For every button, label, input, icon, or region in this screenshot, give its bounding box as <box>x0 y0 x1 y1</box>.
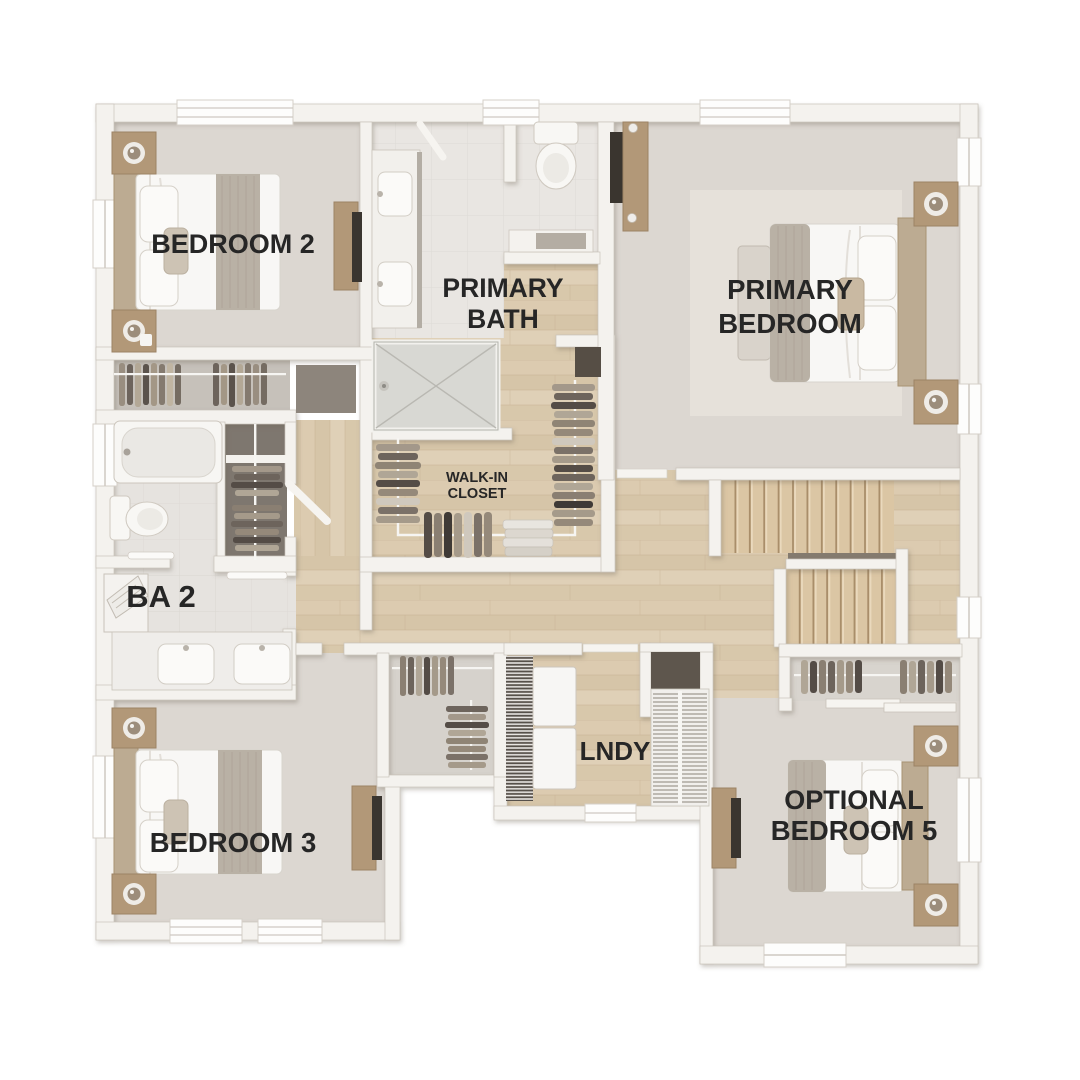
svg-text:WALK-IN: WALK-IN <box>446 470 508 486</box>
svg-text:BA 2: BA 2 <box>126 579 195 614</box>
svg-text:OPTIONAL: OPTIONAL <box>784 785 924 815</box>
svg-text:BATH: BATH <box>467 304 539 334</box>
svg-text:PRIMARY: PRIMARY <box>727 274 853 305</box>
svg-text:BEDROOM 5: BEDROOM 5 <box>771 815 938 846</box>
svg-text:CLOSET: CLOSET <box>448 486 507 502</box>
svg-text:BEDROOM 3: BEDROOM 3 <box>150 827 317 858</box>
svg-text:BEDROOM: BEDROOM <box>718 308 862 339</box>
svg-text:PRIMARY: PRIMARY <box>442 273 564 303</box>
svg-text:LNDY: LNDY <box>580 736 651 766</box>
svg-text:BEDROOM 2: BEDROOM 2 <box>151 229 315 259</box>
